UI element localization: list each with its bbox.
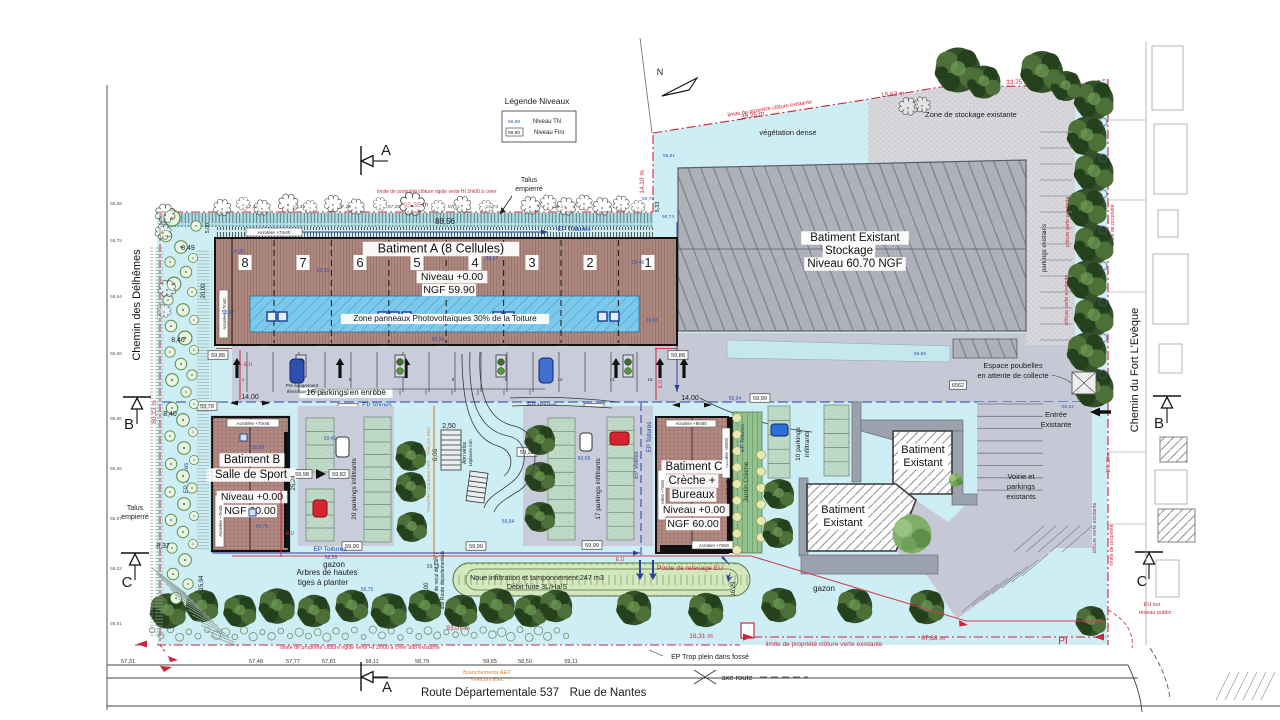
svg-text:Débit fuite 3L/Ha/S: Débit fuite 3L/Ha/S (507, 582, 568, 591)
svg-text:58,97: 58,97 (222, 310, 235, 316)
svg-text:15,94: 15,94 (199, 575, 205, 591)
svg-text:Niveau +0.00: Niveau +0.00 (421, 271, 483, 283)
svg-text:Pré équipement: Pré équipement (286, 383, 319, 388)
svg-text:56,88: 56,88 (508, 119, 520, 125)
svg-text:Existant: Existant (903, 457, 942, 469)
svg-text:empierré: empierré (515, 186, 543, 193)
svg-text:Niveau Fini: Niveau Fini (534, 130, 564, 136)
svg-text:59,88: 59,88 (671, 353, 685, 359)
svg-text:Noue infiltration et tamponnem: Noue infiltration et tamponnement 247 m3 (470, 573, 604, 582)
svg-text:58,57: 58,57 (486, 256, 499, 262)
svg-text:20,00: 20,00 (201, 283, 207, 299)
svg-text:Talus: Talus (521, 177, 538, 184)
svg-text:58,50: 58,50 (518, 659, 532, 665)
svg-text:Batiment: Batiment (901, 444, 944, 456)
svg-text:6562: 6562 (952, 383, 964, 389)
svg-text:Arbres de hautes: Arbres de hautes (297, 568, 358, 577)
svg-text:59,89: 59,89 (914, 351, 926, 357)
svg-text:2,50: 2,50 (442, 423, 456, 430)
svg-text:57,77: 57,77 (286, 659, 300, 665)
svg-text:Niveau +0.00: Niveau +0.00 (663, 504, 725, 516)
svg-text:existants: existants (1006, 492, 1036, 501)
svg-text:en attente de collecte: en attente de collecte (977, 371, 1048, 380)
svg-text:Acrotère +8m00: Acrotère +8m00 (675, 421, 707, 426)
svg-text:16,29: 16,29 (731, 581, 737, 597)
svg-text:clôture verte existante: clôture verte existante (1092, 503, 1098, 554)
svg-text:59,11: 59,11 (564, 659, 577, 665)
svg-text:Zone panneaux Photovoltaïques: Zone panneaux Photovoltaïques 30% de la … (353, 314, 537, 323)
svg-text:8: 8 (241, 255, 248, 270)
svg-text:A: A (382, 679, 392, 696)
svg-text:10places min: 10places min (468, 439, 473, 467)
svg-text:2: 2 (586, 255, 593, 270)
svg-text:Entrée: Entrée (1045, 410, 1067, 419)
svg-text:Acrotère +7m50: Acrotère +7m50 (699, 543, 730, 548)
svg-text:55,75: 55,75 (110, 238, 122, 243)
svg-text:Acrotère +7m45: Acrotère +7m45 (237, 421, 270, 426)
svg-text:EP Toitures: EP Toitures (557, 226, 591, 233)
svg-text:NGF 59.90: NGF 59.90 (423, 284, 475, 296)
svg-text:Acrotère +7m45: Acrotère +7m45 (218, 505, 223, 537)
svg-text:59,99: 59,99 (753, 396, 767, 402)
svg-text:57,48: 57,48 (249, 659, 263, 665)
svg-text:Poste de relevage EU: Poste de relevage EU (657, 565, 723, 572)
svg-text:57,81: 57,81 (322, 659, 336, 665)
svg-text:14,00: 14,00 (681, 395, 699, 402)
svg-text:réseau public: réseau public (1139, 610, 1172, 616)
svg-text:25,24: 25,24 (291, 475, 297, 491)
svg-text:EP Toitures: EP Toitures (313, 546, 347, 553)
svg-text:Niveau +0.00: Niveau +0.00 (221, 491, 283, 503)
svg-text:EP Toitures: EP Toitures (740, 424, 746, 452)
svg-text:14,00: 14,00 (241, 394, 259, 401)
svg-text:Espace poubelles: Espace poubelles (983, 361, 1042, 370)
svg-text:C: C (122, 574, 133, 591)
svg-text:Batiment B: Batiment B (224, 454, 281, 466)
svg-text:EP Voiries: EP Voiries (634, 451, 640, 479)
svg-text:tiges à planter: tiges à planter (298, 578, 349, 587)
svg-text:Acrotère +7m40: Acrotère +7m40 (258, 230, 291, 235)
svg-text:88,56: 88,56 (435, 217, 456, 226)
svg-text:axe route: axe route (721, 673, 752, 682)
svg-text:5: 5 (413, 255, 420, 270)
svg-text:infiltrants: infiltrants (804, 430, 811, 457)
svg-text:60,62: 60,62 (1062, 404, 1074, 410)
svg-text:59,71: 59,71 (256, 524, 269, 530)
svg-text:59,35: 59,35 (232, 249, 245, 255)
svg-text:56,02: 56,02 (110, 566, 122, 571)
svg-text:Batiment C: Batiment C (666, 461, 723, 473)
svg-text:Jardin Crèche: Jardin Crèche (743, 461, 750, 502)
svg-text:57,29: 57,29 (388, 204, 400, 210)
svg-text:axe Route départementale: axe Route départementale (440, 550, 446, 609)
svg-text:7: 7 (299, 255, 306, 270)
svg-text:55,56: 55,56 (110, 466, 122, 471)
svg-text:25,67: 25,67 (727, 479, 733, 495)
svg-text:Batiment Existant: Batiment Existant (810, 232, 900, 244)
svg-text:8,49: 8,49 (181, 245, 195, 252)
svg-text:E.U: E.U (658, 379, 664, 388)
svg-text:Rue de Nantes: Rue de Nantes (570, 687, 647, 699)
svg-text:NGF 60.00: NGF 60.00 (667, 518, 719, 530)
svg-text:Salle de Sport: Salle de Sport (215, 469, 288, 481)
svg-text:Branchements AEP: Branchements AEP (463, 670, 511, 676)
svg-text:8,40: 8,40 (163, 411, 177, 418)
svg-text:végétation dense: végétation dense (759, 128, 816, 137)
svg-text:limite de propriété clôture r: limite de propriété clôture rigide verte… (280, 645, 439, 651)
svg-text:Voirie et: Voirie et (1007, 472, 1035, 481)
svg-text:Niveau 60.70 NGF: Niveau 60.70 NGF (807, 258, 902, 270)
svg-text:E.U: E.U (244, 362, 253, 368)
svg-text:60,09: 60,09 (578, 456, 591, 462)
svg-text:PI: PI (1058, 636, 1067, 647)
svg-text:gazon: gazon (813, 584, 835, 593)
svg-text:59,94: 59,94 (729, 396, 742, 402)
svg-text:clôture verte existante: clôture verte existante (1064, 275, 1070, 326)
svg-text:20 parkings infiltrants: 20 parkings infiltrants (351, 458, 358, 520)
svg-text:59,36: 59,36 (432, 337, 445, 343)
svg-text:16: 16 (647, 377, 653, 382)
svg-text:B: B (1154, 415, 1164, 432)
svg-text:67,88 m: 67,88 m (921, 635, 945, 642)
svg-text:59,90: 59,90 (508, 130, 520, 136)
svg-text:N: N (657, 67, 664, 77)
svg-text:Légende Niveaux: Légende Niveaux (505, 96, 570, 106)
svg-text:Stockage: Stockage (825, 245, 873, 257)
svg-text:59,82: 59,82 (332, 472, 346, 478)
svg-text:59,91: 59,91 (663, 153, 675, 159)
svg-text:17 parkings infiltrants: 17 parkings infiltrants (595, 458, 602, 520)
svg-text:59,41: 59,41 (324, 436, 337, 442)
svg-text:EP Toitures: EP Toitures (647, 422, 653, 452)
svg-text:56,75: 56,75 (361, 587, 374, 593)
svg-text:Crèche +: Crèche + (669, 475, 716, 487)
svg-text:électrique 20%: électrique 20% (287, 389, 317, 394)
svg-text:6,00: 6,00 (432, 448, 439, 461)
svg-text:Batiment A (8 Cellules): Batiment A (8 Cellules) (378, 242, 504, 256)
svg-text:57,31: 57,31 (121, 659, 135, 665)
svg-text:Niveau TN: Niveau TN (533, 119, 561, 125)
svg-text:59,99: 59,99 (585, 543, 599, 549)
svg-text:58,11: 58,11 (365, 659, 378, 665)
svg-text:105,20 m: 105,20 m (1106, 451, 1112, 473)
svg-text:Télécom Elec: Télécom Elec (470, 677, 504, 683)
svg-text:59,54: 59,54 (502, 519, 515, 525)
svg-text:B: B (124, 416, 134, 433)
svg-text:Talus: Talus (127, 505, 144, 512)
svg-text:EP Trop plein dans fossé: EP Trop plein dans fossé (671, 654, 749, 661)
svg-text:Tranchée commune AEP - Télécom: Tranchée commune AEP - Télécom Elec (426, 426, 432, 513)
svg-text:5,00: 5,00 (205, 223, 211, 234)
svg-text:8,46: 8,46 (171, 337, 185, 344)
svg-text:59,65: 59,65 (483, 659, 497, 665)
svg-text:Chemin du Fort L'Evèque: Chemin du Fort L'Evèque (1129, 308, 1141, 432)
svg-text:56,91: 56,91 (110, 621, 122, 626)
svg-text:Route Départementale 537: Route Départementale 537 (421, 687, 559, 699)
svg-text:55,96: 55,96 (110, 416, 122, 421)
svg-text:E.U: E.U (286, 531, 295, 537)
svg-text:14,10 m: 14,10 m (639, 170, 646, 194)
svg-text:55,98: 55,98 (110, 201, 122, 206)
svg-text:4: 4 (471, 255, 478, 270)
svg-text:limite de propriété clôture r: limite de propriété clôture rigide verte… (377, 189, 497, 195)
svg-text:parkings: parkings (1007, 482, 1036, 491)
svg-text:E.U: E.U (616, 557, 625, 563)
svg-text:Chemin des Délhêmes: Chemin des Délhêmes (131, 249, 143, 361)
svg-text:1: 1 (644, 255, 651, 270)
svg-text:58,86: 58,86 (252, 445, 265, 451)
svg-text:Bureaux: Bureaux (672, 489, 715, 501)
svg-text:limite de propriété: limite de propriété (1109, 524, 1115, 565)
svg-text:parkings existants: parkings existants (1042, 224, 1048, 272)
svg-text:58,85: 58,85 (317, 268, 330, 274)
svg-text:Existante: Existante (1041, 420, 1072, 429)
svg-text:55,98: 55,98 (110, 351, 122, 356)
svg-text:6: 6 (356, 255, 363, 270)
svg-text:59,98: 59,98 (295, 472, 309, 478)
svg-text:Existant: Existant (823, 517, 862, 529)
svg-text:16,31 m: 16,31 m (689, 633, 713, 640)
svg-text:5,33: 5,33 (655, 202, 661, 213)
svg-text:59,90: 59,90 (469, 544, 483, 550)
svg-text:empierré: empierré (121, 514, 149, 521)
svg-text:55,64: 55,64 (110, 294, 122, 299)
svg-text:13: 13 (609, 377, 615, 382)
svg-text:59,46: 59,46 (632, 260, 645, 266)
svg-text:limite de propriété clôture v: limite de propriété clôture verte exista… (765, 641, 882, 648)
svg-text:58,79: 58,79 (415, 659, 429, 665)
svg-text:59,74: 59,74 (662, 214, 674, 220)
svg-text:A: A (381, 142, 391, 159)
svg-text:8,37: 8,37 (156, 543, 170, 550)
svg-text:59,70: 59,70 (642, 196, 654, 202)
svg-text:59,90: 59,90 (345, 544, 359, 550)
svg-text:Batiment: Batiment (821, 504, 864, 516)
svg-text:Zone de stockage existante: Zone de stockage existante (925, 110, 1017, 119)
svg-text:59,88: 59,88 (646, 318, 659, 324)
svg-text:3: 3 (528, 255, 535, 270)
svg-text:59,88: 59,88 (211, 353, 225, 359)
svg-text:10 parkings: 10 parkings (795, 426, 802, 460)
svg-text:12: 12 (557, 377, 563, 382)
